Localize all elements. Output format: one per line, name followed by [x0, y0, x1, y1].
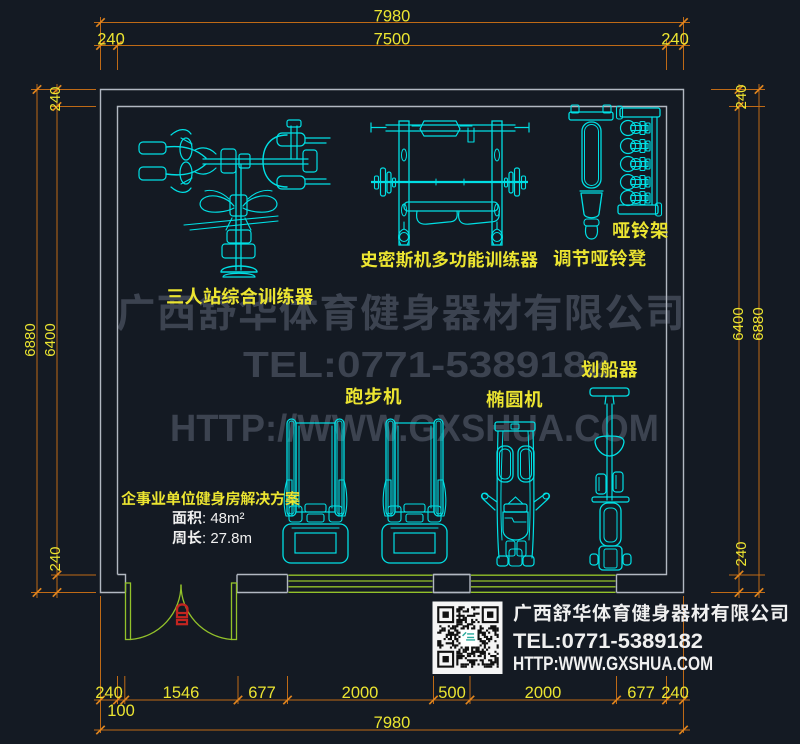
- svg-text:240: 240: [95, 684, 123, 702]
- svg-text:: 48m²: : 48m²: [202, 510, 245, 527]
- svg-text:240: 240: [733, 84, 750, 109]
- svg-text:240: 240: [47, 546, 64, 571]
- svg-text:7980: 7980: [374, 8, 411, 26]
- svg-text:6880: 6880: [22, 323, 39, 356]
- svg-text:2000: 2000: [342, 684, 379, 702]
- svg-text:240: 240: [661, 31, 689, 49]
- svg-text:240: 240: [733, 541, 750, 566]
- svg-text:6400: 6400: [42, 323, 59, 356]
- svg-text:2000: 2000: [525, 684, 562, 702]
- svg-text:HTTP:WWW.GXSHUA.COM: HTTP:WWW.GXSHUA.COM: [513, 654, 713, 675]
- svg-text:7500: 7500: [374, 31, 411, 49]
- svg-text:677: 677: [248, 684, 276, 702]
- svg-text:6880: 6880: [750, 307, 767, 340]
- svg-text:TEL:0771-5389182: TEL:0771-5389182: [513, 630, 703, 653]
- svg-text:500: 500: [438, 684, 466, 702]
- svg-text:: 27.8m: : 27.8m: [202, 530, 252, 547]
- svg-text:HTTP://WWW.GXSHUA.COM: HTTP://WWW.GXSHUA.COM: [170, 408, 659, 450]
- svg-text:1546: 1546: [163, 684, 200, 702]
- svg-text:240: 240: [97, 31, 125, 49]
- svg-text:TEL:0771-5389182: TEL:0771-5389182: [243, 344, 610, 385]
- svg-text:677: 677: [627, 684, 655, 702]
- svg-text:6400: 6400: [730, 307, 747, 340]
- svg-text:240: 240: [47, 86, 64, 111]
- svg-text:240: 240: [661, 684, 689, 702]
- svg-text:100: 100: [107, 702, 135, 720]
- svg-text:7980: 7980: [374, 714, 411, 732]
